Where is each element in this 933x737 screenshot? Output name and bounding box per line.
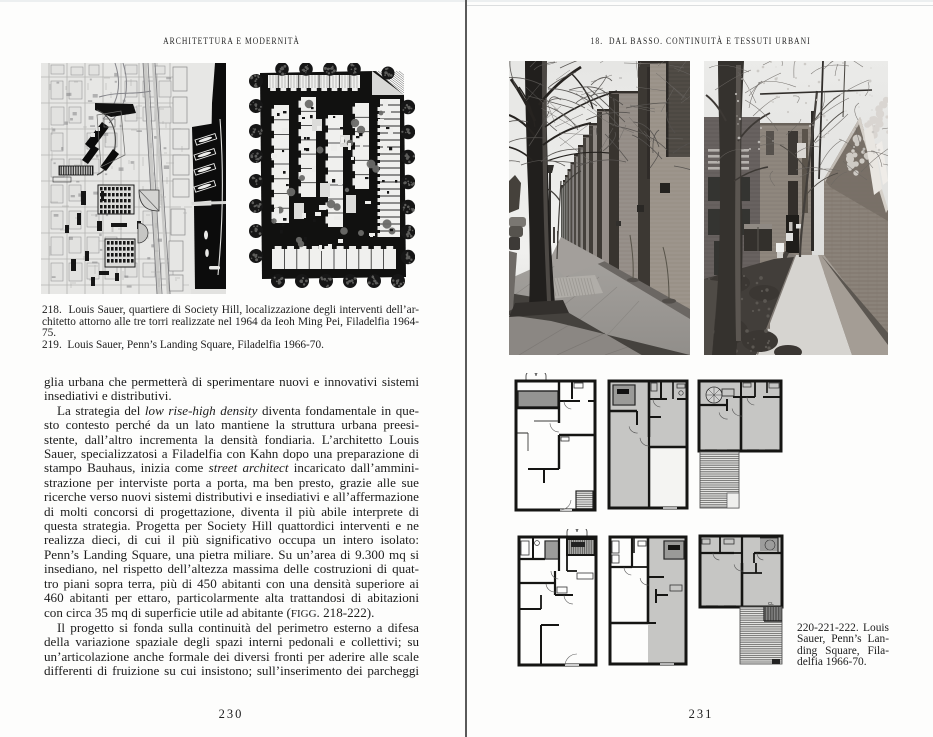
svg-text:CL: CL: [768, 601, 774, 606]
